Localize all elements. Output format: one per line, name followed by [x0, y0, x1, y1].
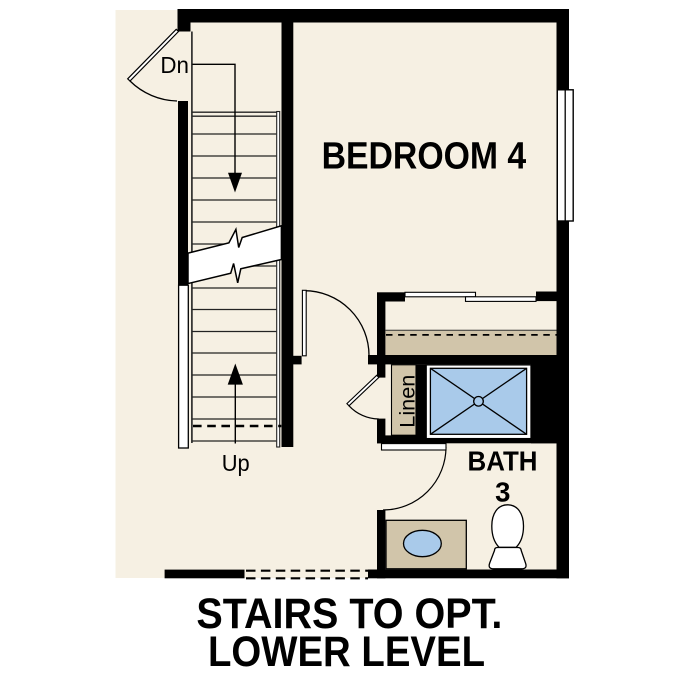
svg-text:Dn: Dn [160, 52, 189, 78]
svg-text:BEDROOM 4: BEDROOM 4 [322, 136, 527, 178]
svg-text:Linen: Linen [396, 375, 419, 428]
svg-text:3: 3 [495, 476, 510, 507]
svg-text:BATH: BATH [468, 446, 538, 477]
svg-text:Up: Up [222, 450, 250, 476]
svg-text:LOWER LEVEL: LOWER LEVEL [208, 629, 485, 676]
